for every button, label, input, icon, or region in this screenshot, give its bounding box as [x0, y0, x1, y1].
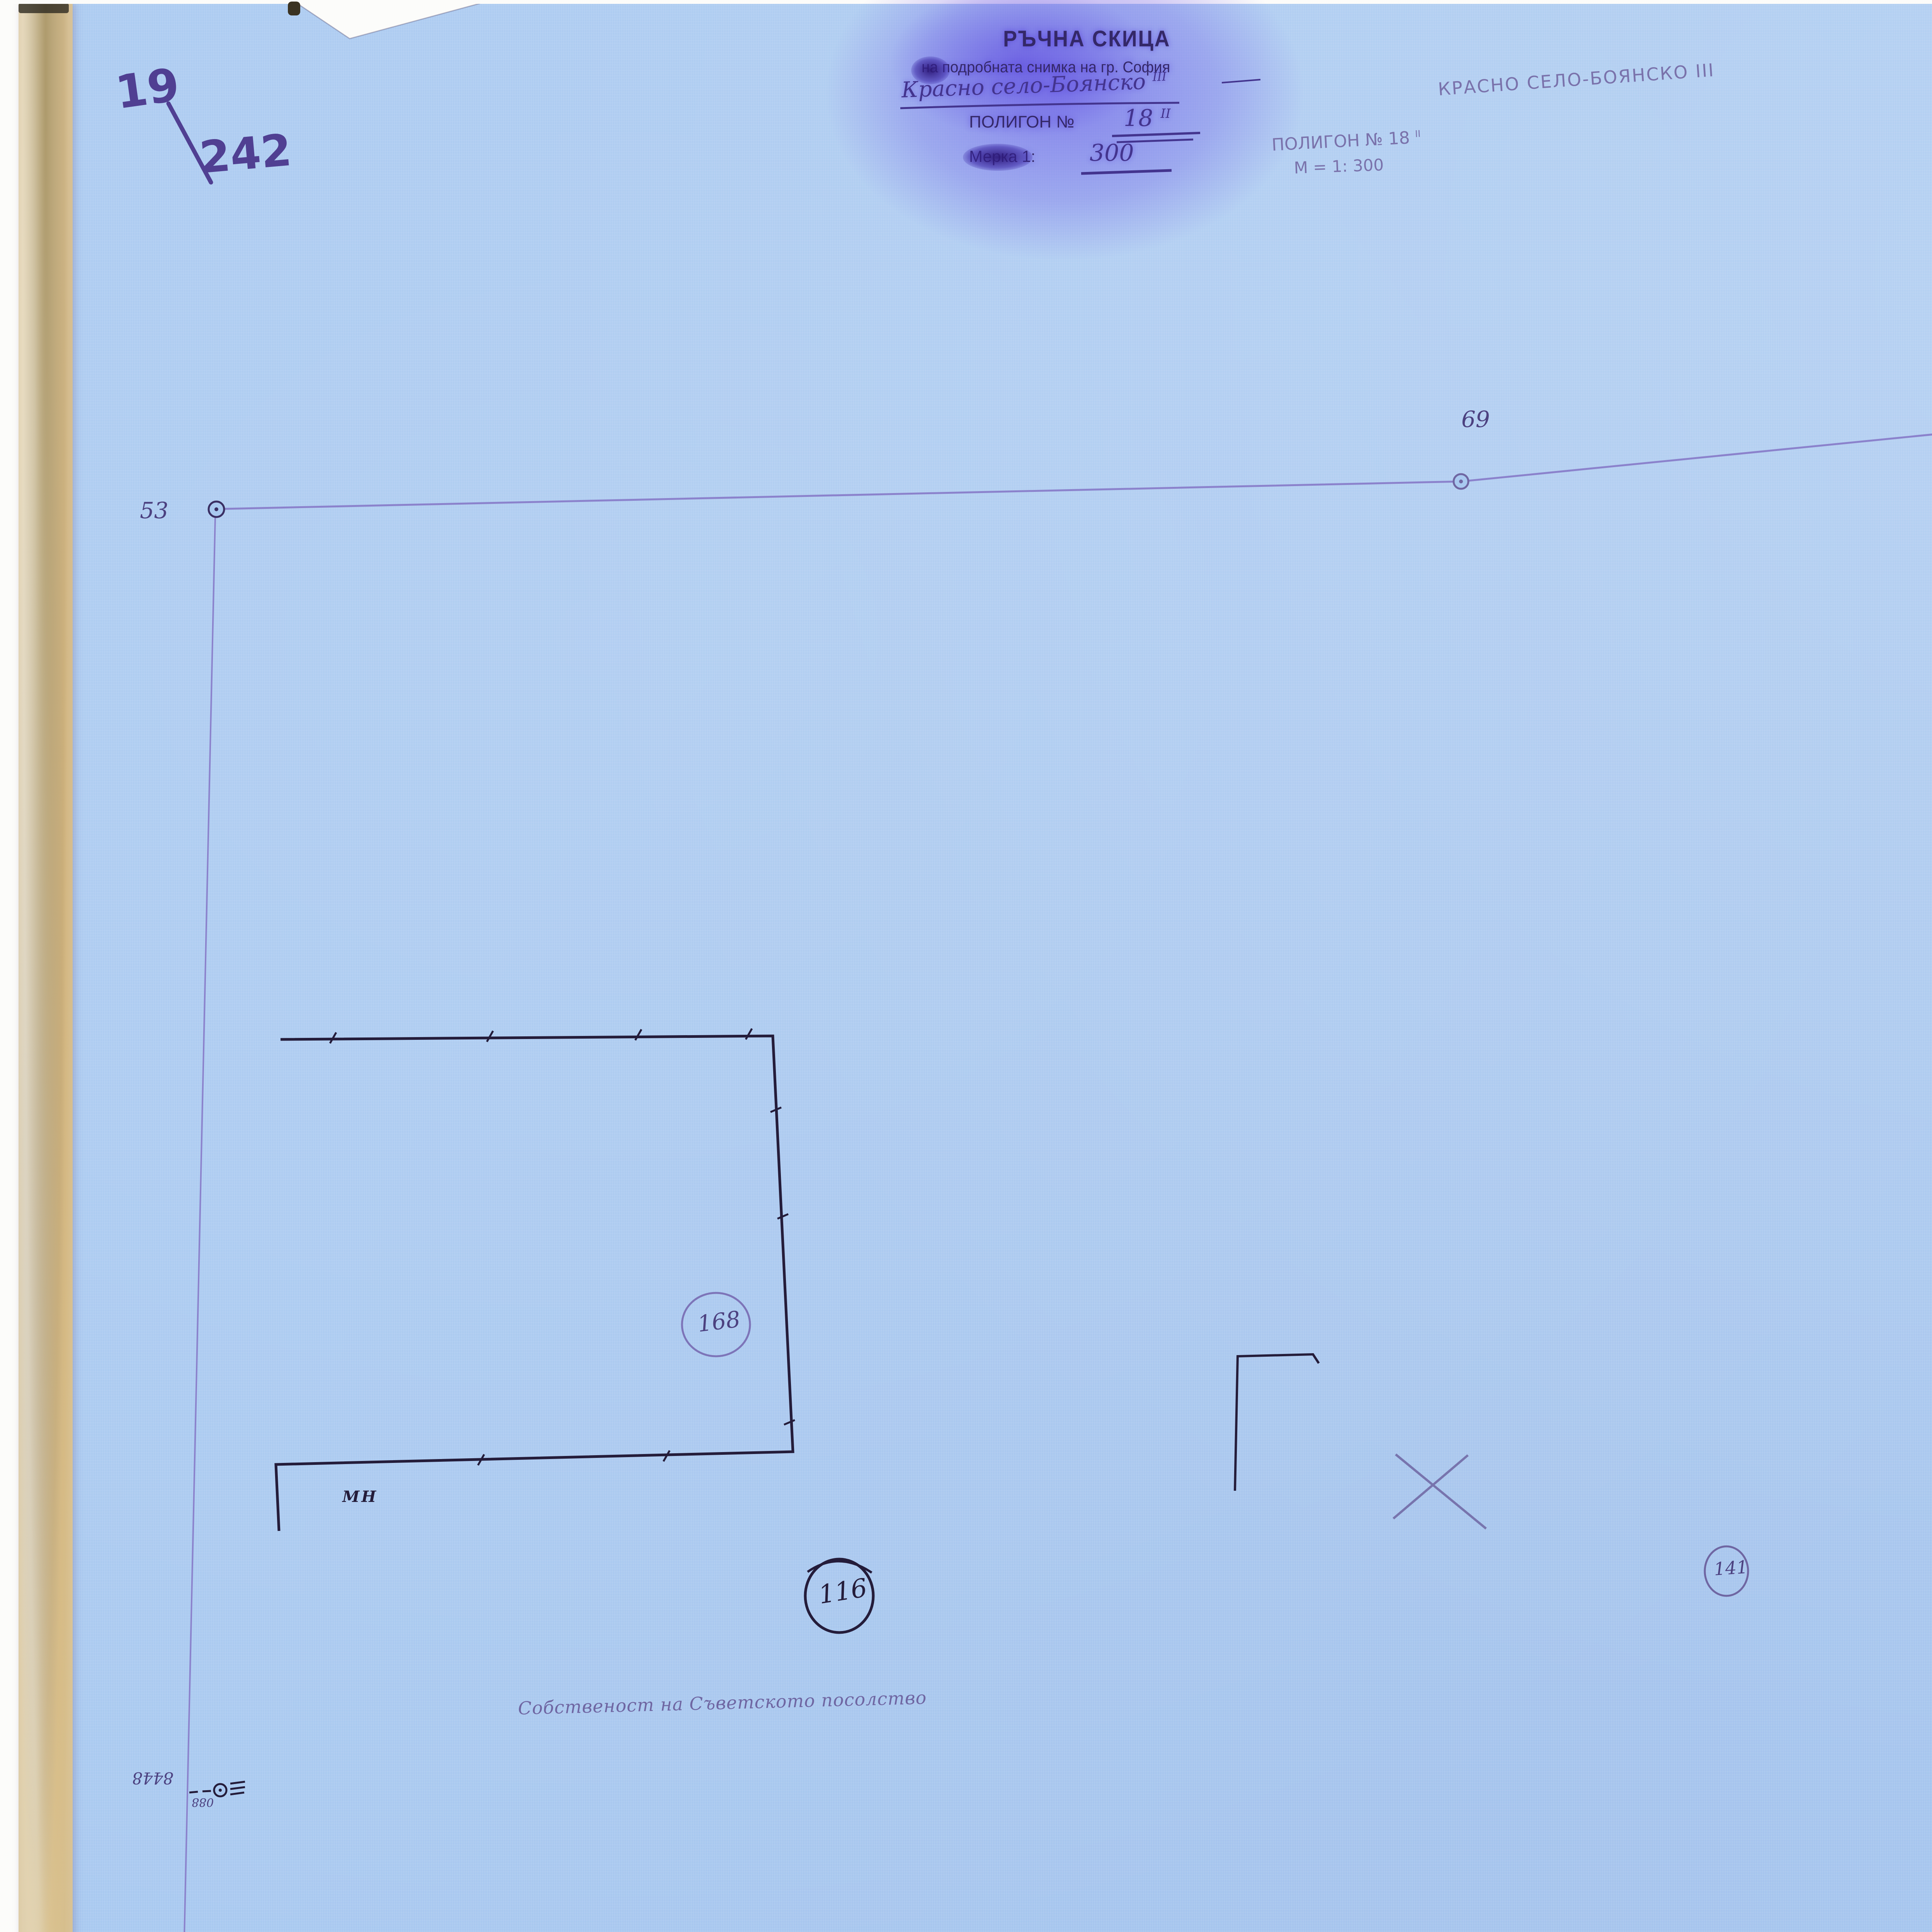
top-edge-dark-speck [288, 2, 300, 15]
stamp-title: РЪЧНА СКИЦА [1003, 28, 1170, 50]
point-label-53: 53 [140, 499, 168, 522]
pencil-scale: М = 1: 300 [1294, 157, 1384, 176]
mark-8448-label: 8448 [132, 1770, 173, 1786]
parcel-label-116: 116 [817, 1575, 869, 1608]
pencil-polygon-suffix: II [1415, 128, 1421, 139]
stamp-polygon-value: 18 II [1124, 107, 1171, 130]
sheet-number-numerator: 19 [113, 61, 182, 116]
parcel-label-168: 168 [696, 1308, 742, 1335]
torn-notch [292, 0, 493, 39]
stamp-polygon-number: 18 [1124, 105, 1153, 132]
stamp-polygon-label: ПОЛИГОН № [969, 114, 1075, 131]
stamp-scale-value: 300 [1090, 141, 1134, 165]
point-label-69: 69 [1461, 408, 1490, 430]
scanned-survey-sheet: РЪЧНА СКИЦА на подробната снимка на гр. … [0, 0, 1932, 1932]
paper-sheet [19, 4, 1932, 1932]
ink-blot-scale [963, 144, 1032, 171]
mn-label: МН [342, 1489, 378, 1505]
mark-8448-offset: 088 [192, 1796, 214, 1808]
stamp-locality-suffix: III [1152, 70, 1167, 84]
sheet-number-denominator: 242 [198, 128, 293, 180]
stamp-polygon-suffix: II [1160, 106, 1170, 121]
parcel-label-141: 141 [1713, 1558, 1748, 1578]
aged-left-edge [19, 3, 73, 1932]
